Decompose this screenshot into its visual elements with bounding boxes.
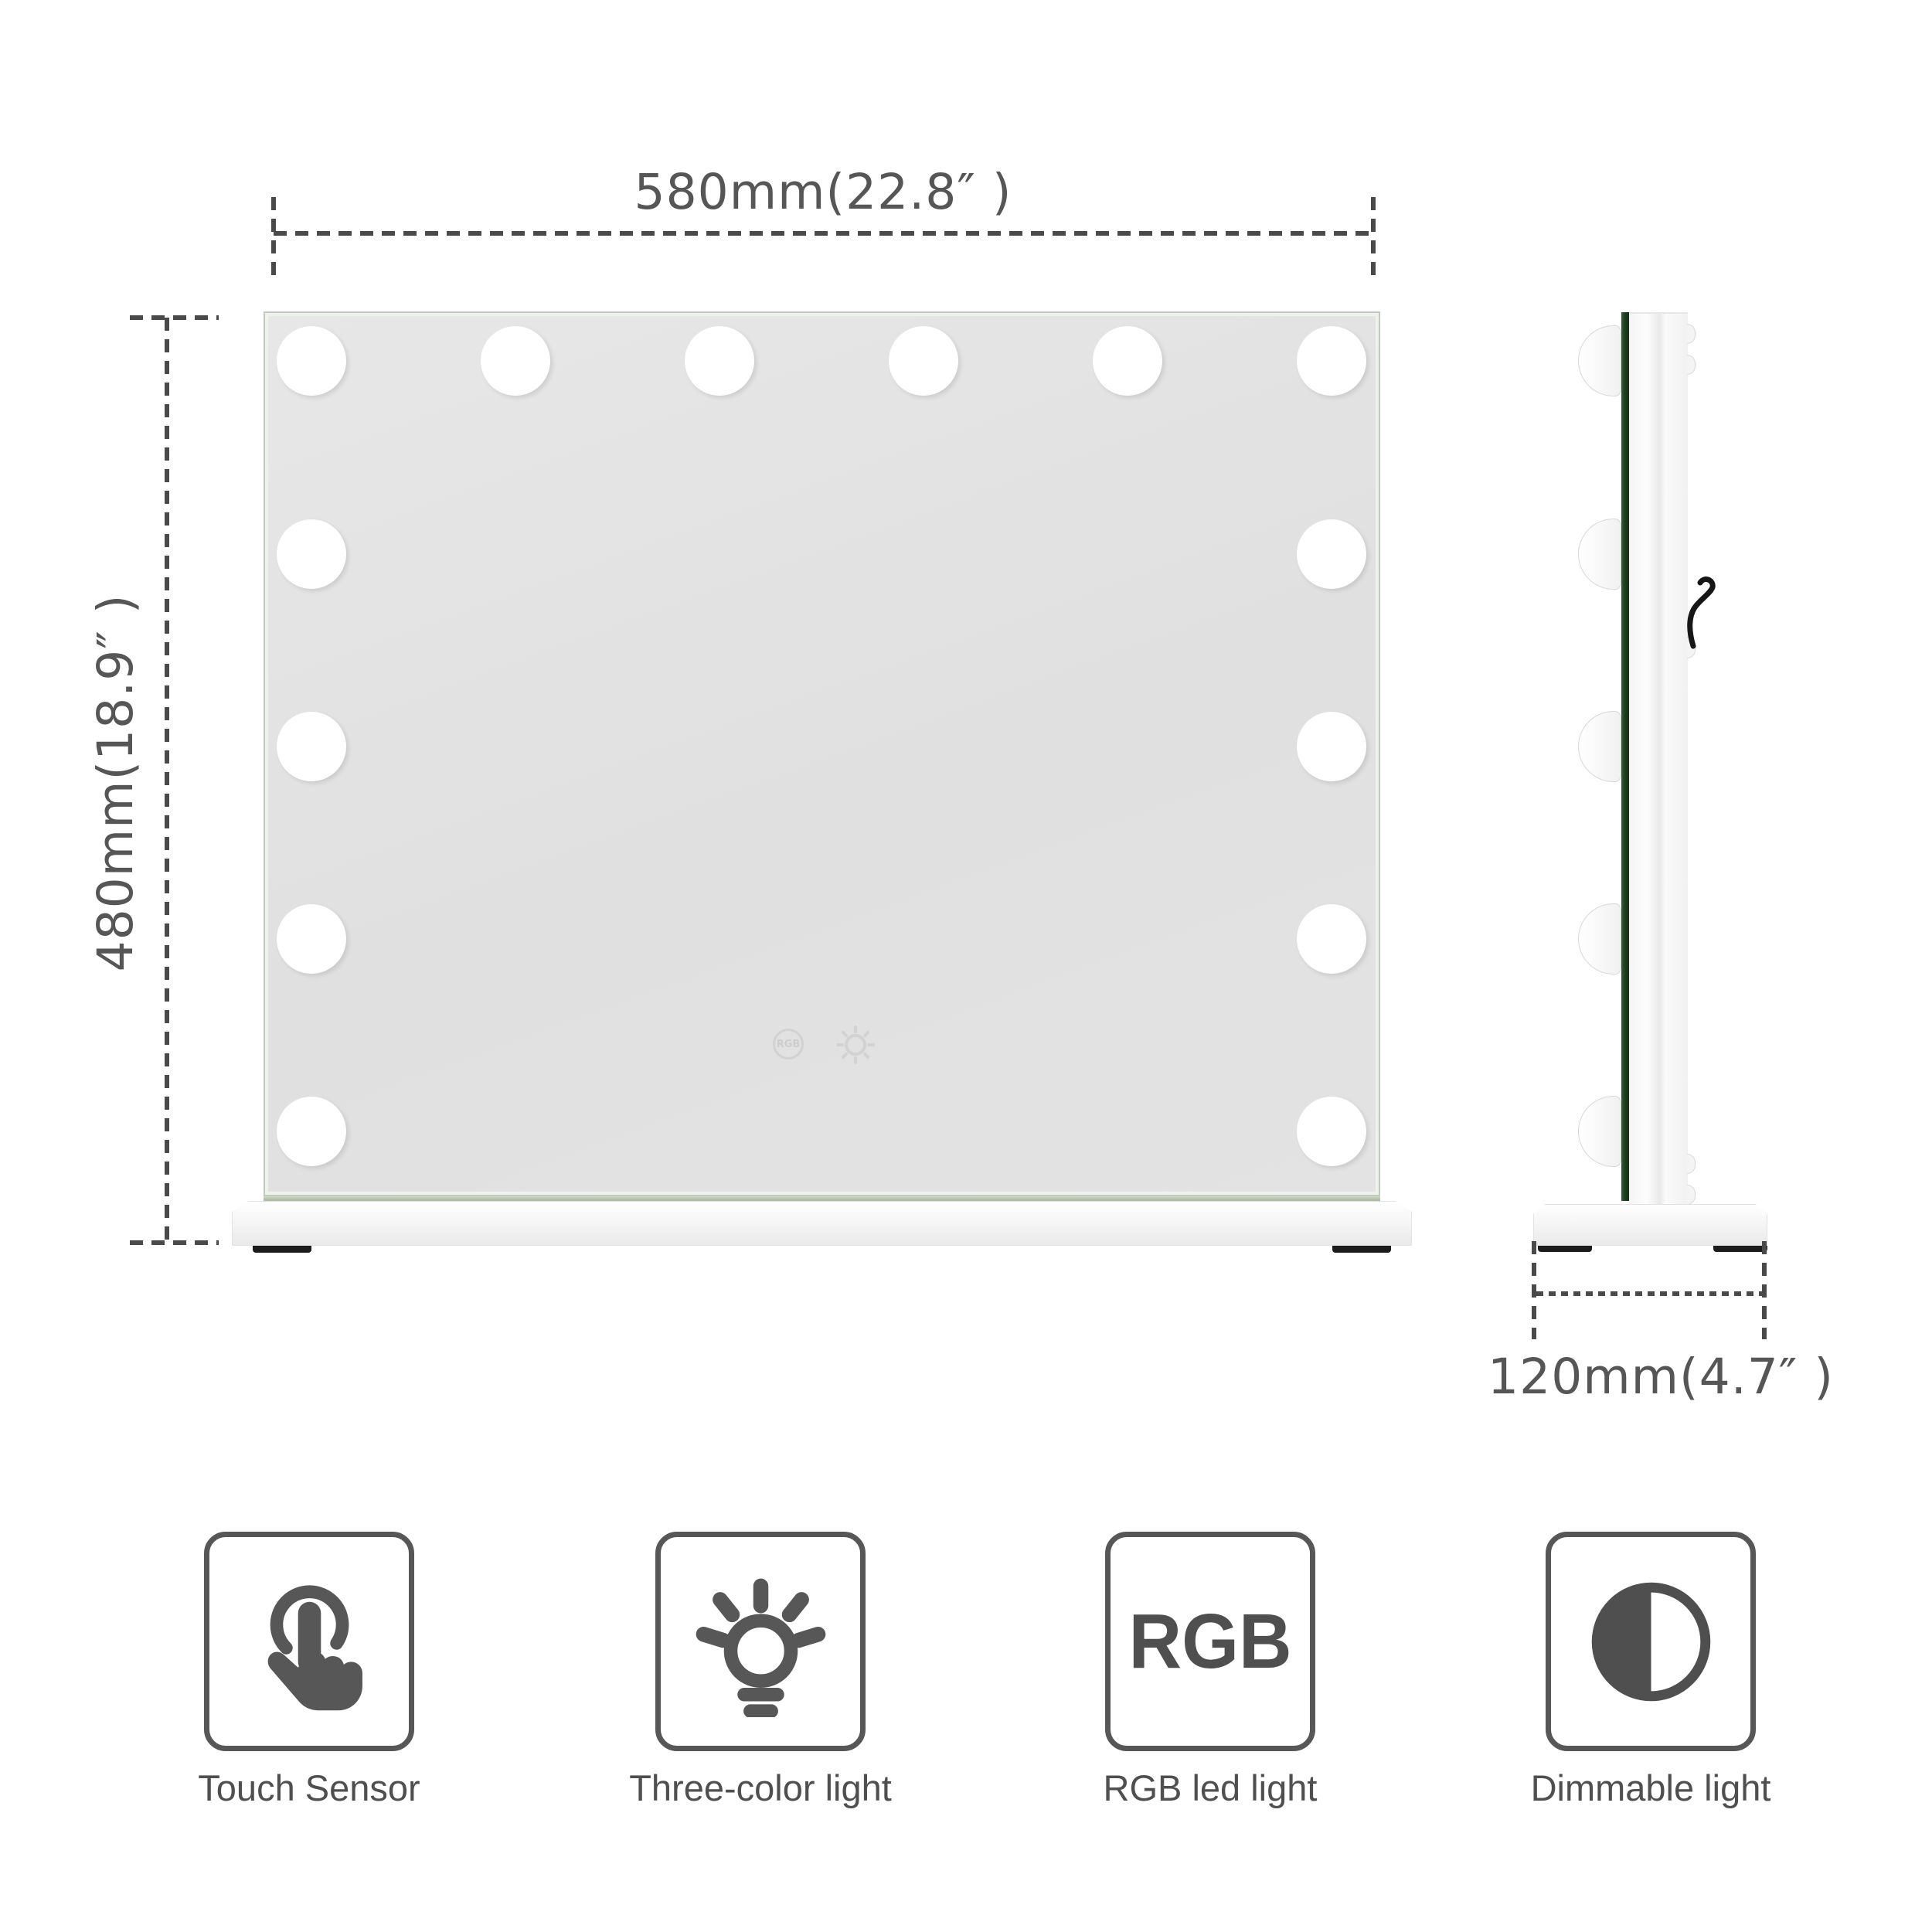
mirror-glass-edge [264,1196,1380,1202]
back-knob [1687,1154,1696,1174]
mirror-glass-side-edge [1621,312,1629,1201]
side-bulb [1578,903,1621,975]
mirror-side-body [1629,312,1688,1204]
side-bulb [1578,325,1621,396]
feature-label: Touch Sensor [77,1767,541,1809]
bulb [277,326,346,396]
feature-label: RGB led light [978,1767,1442,1809]
width-dimension-tick-right [1371,197,1376,284]
dimmable-light-feature-box [1546,1532,1756,1751]
base-foot [1538,1246,1592,1252]
three-color-light-feature-box [655,1532,866,1751]
height-dimension-tick-top [130,315,219,320]
depth-dimension-tick-right [1762,1241,1767,1339]
side-bulb [1578,711,1621,782]
depth-dimension-line [1536,1291,1762,1296]
mirror-base-front [232,1201,1412,1246]
height-dimension-line [165,318,169,1243]
side-bulb [1578,519,1621,590]
bulb [277,712,346,781]
rgb-led-light-feature-box: RGB [1105,1532,1315,1751]
rgb-mode-icon[interactable]: RGB [773,1029,804,1060]
base-foot [1332,1246,1391,1253]
bulb [1297,904,1366,974]
feature-label: Three-color light [529,1767,992,1809]
side-bulb [1578,1096,1621,1167]
bulb [277,1097,346,1166]
back-knob [1687,355,1696,375]
bulb [1297,519,1366,589]
bulb [1297,1097,1366,1166]
back-knob [1687,324,1696,344]
height-dimension-tick-bottom [130,1240,219,1245]
base-foot [253,1246,311,1253]
depth-dimension-tick-left [1532,1241,1536,1339]
mirror-base-side [1533,1204,1767,1246]
back-knob [1687,1185,1696,1205]
bulb [685,326,754,396]
feature-label: Dimmable light [1419,1767,1883,1809]
width-dimension-line [274,231,1373,236]
touch-sensor-icon [238,1570,381,1713]
bulb [277,519,346,589]
width-dimension-tick-left [271,197,276,284]
power-cord [1669,572,1723,665]
brightness-icon[interactable] [834,1023,877,1066]
front-height-label: 480mm(18.9″ ) [89,396,143,1169]
bulb [277,904,346,974]
touch-sensor-feature-box [204,1532,414,1751]
three-color-light-icon [685,1566,836,1717]
bulb [1297,326,1366,396]
side-depth-label: 120mm(4.7″ ) [1274,1349,1932,1405]
rgb-led-light-icon: RGB [1128,1597,1291,1686]
bulb [1297,712,1366,781]
base-foot [1713,1246,1767,1252]
mirror-front-view [264,311,1380,1196]
dimmable-light-icon [1580,1570,1723,1713]
front-width-label: 580mm(22.8″ ) [437,164,1209,220]
bulb [1093,326,1162,396]
bulb [889,326,958,396]
bulb [481,326,550,396]
product-dimension-diagram: 580mm(22.8″ ) 480mm(18.9″ ) RGB [0,0,1932,1932]
